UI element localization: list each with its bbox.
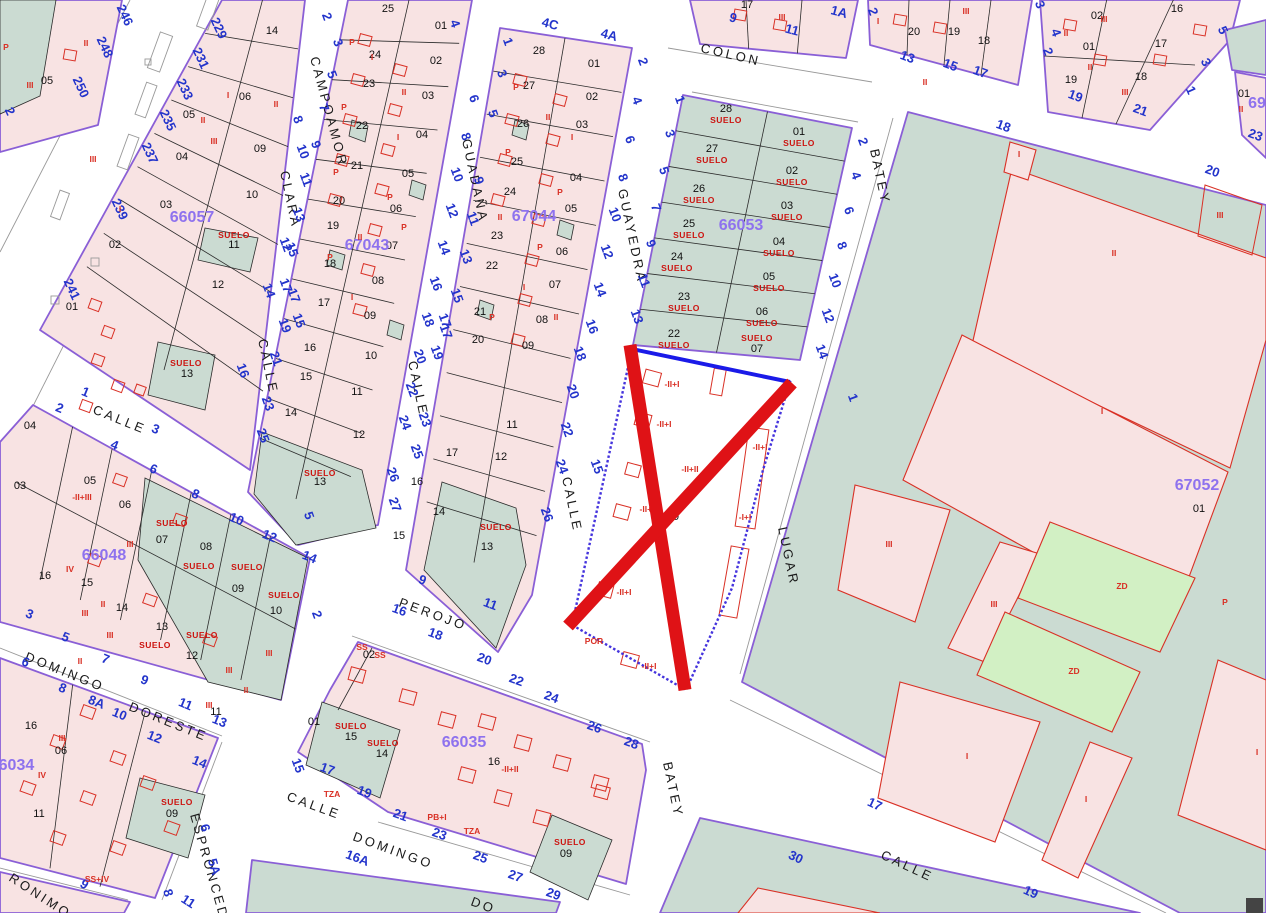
parcel-number: 01 xyxy=(588,58,600,70)
corner-marker xyxy=(1246,898,1263,913)
building-annotation: TZA xyxy=(324,789,341,799)
building-annotation: P xyxy=(557,187,563,197)
suelo-label: SUELO xyxy=(776,177,808,187)
parcel-number: 02 xyxy=(786,165,798,177)
building-annotation: II xyxy=(78,656,83,666)
parcel-number: 23 xyxy=(363,78,375,90)
parcel-number: 03 xyxy=(422,90,434,102)
building-annotation: -II+I xyxy=(617,587,632,597)
parcel-number: 16 xyxy=(304,342,316,354)
parcel-number: 01 xyxy=(793,126,805,138)
parcel-number: 11 xyxy=(351,386,362,398)
parcel-number: 03 xyxy=(14,480,26,492)
parcel-number: 14 xyxy=(266,25,278,37)
parcel-number: 17 xyxy=(741,0,753,11)
block-id-69: 69 xyxy=(1248,95,1266,112)
building-annotation: III xyxy=(1216,210,1223,220)
building-annotation: I xyxy=(371,52,373,62)
parcel-number: 26 xyxy=(693,183,705,195)
building-annotation: III xyxy=(81,608,88,618)
parcel-number: 27 xyxy=(706,143,718,155)
suelo-label: SUELO xyxy=(696,155,728,165)
building-annotation: II xyxy=(358,232,363,242)
block-id-66048: 66048 xyxy=(82,547,127,564)
building-annotation: II xyxy=(1112,248,1117,258)
parcel-number: 14 xyxy=(433,506,445,518)
parcel-number: 07 xyxy=(751,343,763,355)
building-annotation: P xyxy=(327,252,333,262)
parcel-number: 05 xyxy=(763,271,775,283)
parcel-number: 15 xyxy=(81,577,93,589)
building-annotation: -II+I xyxy=(657,419,672,429)
parcel-number: 01 xyxy=(1193,503,1205,515)
building-annotation: PB+I xyxy=(427,812,446,822)
parcel-number: 25 xyxy=(382,3,394,15)
suelo-label: SUELO xyxy=(683,195,715,205)
parcel-number: 14 xyxy=(116,602,128,614)
parcel-number: 20 xyxy=(908,26,920,38)
building-annotation: III xyxy=(26,80,33,90)
parcel-number: 09 xyxy=(232,583,244,595)
parcel-number: 20 xyxy=(333,195,345,207)
building-annotation: SS xyxy=(374,650,386,660)
building-annotation: -II+II xyxy=(501,764,518,774)
block-id-66057: 66057 xyxy=(170,209,215,226)
parcel-number: 18 xyxy=(978,35,990,47)
parcel-number: 18 xyxy=(1135,71,1147,83)
building-annotation: II xyxy=(201,115,206,125)
building-annotation: P xyxy=(333,167,339,177)
suelo-label: SUELO xyxy=(741,333,773,343)
block-id-67052: 67052 xyxy=(1175,477,1220,494)
suelo-label: SUELO xyxy=(763,248,795,258)
building-annotation: P xyxy=(387,192,393,202)
parcel-number: 19 xyxy=(1065,74,1077,86)
parcel-number: 24 xyxy=(671,251,683,263)
suelo-label: SUELO xyxy=(658,340,690,350)
parcel-number: 06 xyxy=(556,246,568,258)
parcel-number: 09 xyxy=(166,808,178,820)
suelo-label: SUELO xyxy=(554,837,586,847)
parcel-number: 14 xyxy=(376,748,388,760)
parcel-number: 05 xyxy=(183,109,195,121)
parcel-number: 05 xyxy=(41,75,53,87)
building-annotation: P xyxy=(489,312,495,322)
suelo-label: SUELO xyxy=(231,562,263,572)
parcel-number: 10 xyxy=(365,350,377,362)
parcel-number: 17 xyxy=(446,447,458,459)
parcel-number: 23 xyxy=(491,230,503,242)
suelo-label: SUELO xyxy=(668,303,700,313)
building-annotation: III xyxy=(89,154,96,164)
building-annotation: II xyxy=(84,38,89,48)
building-annotation: ZD xyxy=(1116,581,1127,591)
building-annotation: III xyxy=(265,648,272,658)
parcel-number: 07 xyxy=(156,534,168,546)
building-annotation: III xyxy=(962,6,969,16)
parcel-number: 16 xyxy=(1171,3,1183,15)
building-annotation: I xyxy=(571,132,573,142)
building-annotation: III xyxy=(885,539,892,549)
building-annotation: I xyxy=(1256,747,1258,757)
parcel-number: 02 xyxy=(430,55,442,67)
suelo-label: SUELO xyxy=(771,212,803,222)
parcel-number: 22 xyxy=(486,260,498,272)
suelo-label: SUELO xyxy=(335,721,367,731)
parcel-number: 04 xyxy=(570,172,582,184)
building-annotation: II xyxy=(1064,28,1069,38)
parcel-number: 09 xyxy=(522,340,534,352)
parcel-number: 12 xyxy=(495,451,507,463)
suelo-label: SUELO xyxy=(161,797,193,807)
parcel-number: 12 xyxy=(212,279,224,291)
suelo-label: SUELO xyxy=(673,230,705,240)
parcel-number: 12 xyxy=(186,650,198,662)
suelo-label: SUELO xyxy=(710,115,742,125)
parcel-number: 25 xyxy=(511,156,523,168)
parcel-number: 05 xyxy=(84,475,96,487)
building-annotation: P xyxy=(537,242,543,252)
parcel-number: 21 xyxy=(474,306,486,318)
block-id-66034: 66034 xyxy=(0,757,34,774)
building-annotation: II xyxy=(274,99,279,109)
building-annotation: I xyxy=(227,90,229,100)
parcel-number: 11 xyxy=(506,419,517,431)
parcel-number: 13 xyxy=(156,621,168,633)
parcel-number: 28 xyxy=(533,45,545,57)
parcel-number: 15 xyxy=(300,371,312,383)
building-annotation: P xyxy=(513,82,519,92)
building-annotation: -II+I xyxy=(753,442,768,452)
parcel-number: 17 xyxy=(318,297,330,309)
building-annotation: II xyxy=(554,312,559,322)
building-annotation: III xyxy=(126,539,133,549)
parcel-number: 01 xyxy=(435,20,447,32)
parcel-number: 16 xyxy=(25,720,37,732)
building-annotation: III xyxy=(106,630,113,640)
suelo-label: SUELO xyxy=(183,561,215,571)
building-annotation: III xyxy=(778,12,785,22)
parcel-number: 23 xyxy=(678,291,690,303)
parcel-number: 17 xyxy=(1155,38,1167,50)
building-annotation: P xyxy=(1222,597,1228,607)
parcel-number: 15 xyxy=(345,731,357,743)
building-annotation: II xyxy=(402,87,407,97)
parcel-number: 09 xyxy=(560,848,572,860)
parcel-number: 25 xyxy=(683,218,695,230)
block-id-67043: 67043 xyxy=(345,237,390,254)
parcel-number: 06 xyxy=(239,91,251,103)
building-annotation: III xyxy=(210,136,217,146)
building-annotation: I xyxy=(1018,149,1020,159)
parcel-number: 10 xyxy=(270,605,282,617)
building-annotation: P xyxy=(505,147,511,157)
parcel-number: 10 xyxy=(246,189,258,201)
building-annotation: II xyxy=(1239,104,1244,114)
building-annotation: -II+I xyxy=(642,661,657,671)
parcel-number: 12 xyxy=(353,429,365,441)
parcel-number: 16 xyxy=(411,476,423,488)
parcel-number: 27 xyxy=(523,80,535,92)
cadastral-map[interactable]: COLONCAMPOAMORCLARACALLEGUADAÑACALLEGUAY… xyxy=(0,0,1266,913)
suelo-label: SUELO xyxy=(367,738,399,748)
suelo-label: SUELO xyxy=(268,590,300,600)
parcel-number: 16 xyxy=(39,570,51,582)
building-annotation: III xyxy=(1121,87,1128,97)
block-id-66053: 66053 xyxy=(719,217,764,234)
building-annotation: IV xyxy=(38,770,46,780)
suelo-label: SUELO xyxy=(480,522,512,532)
parcel-number: 04 xyxy=(773,236,785,248)
parcel-number: 26 xyxy=(517,118,529,130)
parcel-number: 06 xyxy=(756,306,768,318)
parcel-number: 04 xyxy=(24,420,36,432)
building-annotation: III xyxy=(1100,14,1107,24)
parcel-number: 22 xyxy=(356,120,368,132)
parcel-number: 24 xyxy=(504,186,516,198)
parcel-number: 13 xyxy=(481,541,493,553)
building-annotation: SS+IV xyxy=(85,874,110,884)
building-annotation: P xyxy=(401,222,407,232)
parcel-number: 16 xyxy=(488,756,500,768)
building-annotation: -II+III xyxy=(72,492,92,502)
building-annotation: SS xyxy=(356,642,368,652)
parcel-number: 04 xyxy=(176,151,188,163)
parcel-number: 11 xyxy=(33,808,44,820)
parcel-number: 13 xyxy=(181,368,193,380)
suelo-label: SUELO xyxy=(661,263,693,273)
building-annotation: -I+I xyxy=(739,512,752,522)
building-annotation: I xyxy=(1101,406,1103,416)
suelo-label: SUELO xyxy=(783,138,815,148)
block-id-67044: 67044 xyxy=(512,208,557,225)
parcel-number: 11 xyxy=(228,239,239,251)
building-annotation: II xyxy=(498,212,503,222)
parcel-number: 15 xyxy=(393,530,405,542)
parcel-number: 05 xyxy=(565,203,577,215)
parcel-number: 01 xyxy=(1083,41,1095,53)
building-annotation: -II+II xyxy=(681,464,698,474)
parcel-number: 08 xyxy=(372,275,384,287)
parcel-number: 06 xyxy=(119,499,131,511)
parcel-number: 04 xyxy=(416,129,428,141)
building-annotation: II xyxy=(1088,62,1093,72)
parcel-number: 03 xyxy=(781,200,793,212)
building-annotation: TZA xyxy=(464,826,481,836)
parcel-number: 09 xyxy=(254,143,266,155)
building-annotation: II xyxy=(546,112,551,122)
parcel-number: 19 xyxy=(327,220,339,232)
parcel-number: 19 xyxy=(948,26,960,38)
suelo-label: SUELO xyxy=(156,518,188,528)
building-annotation: III xyxy=(990,599,997,609)
parcel-number: 03 xyxy=(576,119,588,131)
parcel-number: 06 xyxy=(390,203,402,215)
parcel-number: 14 xyxy=(285,407,297,419)
building-annotation: II xyxy=(923,77,928,87)
parcel-number: 01 xyxy=(308,716,320,728)
parcel-number: 02 xyxy=(586,91,598,103)
suelo-label: SUELO xyxy=(186,630,218,640)
building-annotation: -II+I xyxy=(665,379,680,389)
building-annotation: I xyxy=(397,132,399,142)
parcel-number: 06 xyxy=(55,745,67,757)
building-annotation: I xyxy=(877,16,879,26)
parcel-number: 08 xyxy=(200,541,212,553)
building-annotation: II xyxy=(101,599,106,609)
building-annotation: I xyxy=(523,282,525,292)
parcel-number: 09 xyxy=(364,310,376,322)
building-annotation: P xyxy=(341,102,347,112)
parcel-number: 21 xyxy=(351,160,363,172)
suelo-label: SUELO xyxy=(139,640,171,650)
suelo-label: SUELO xyxy=(304,468,336,478)
parcel-number: 22 xyxy=(668,328,680,340)
building-annotation: I xyxy=(1085,794,1087,804)
cadastral-map-viewport[interactable]: COLONCAMPOAMORCLARACALLEGUADAÑACALLEGUAY… xyxy=(0,0,1266,913)
building-annotation: ZD xyxy=(1068,666,1079,676)
block-id-66035: 66035 xyxy=(442,734,487,751)
building-annotation: III xyxy=(58,733,65,743)
building-annotation: IV xyxy=(66,564,74,574)
suelo-label: SUELO xyxy=(218,230,250,240)
parcel-number: 28 xyxy=(720,103,732,115)
suelo-label: SUELO xyxy=(753,283,785,293)
building-annotation: P xyxy=(349,37,355,47)
building-annotation: III xyxy=(205,700,212,710)
suelo-label: SUELO xyxy=(170,358,202,368)
parcel-number: 02 xyxy=(109,239,121,251)
building-annotation: I xyxy=(119,204,121,214)
building-annotation: I xyxy=(966,751,968,761)
building-annotation: I xyxy=(351,292,353,302)
parcel-number: 20 xyxy=(472,334,484,346)
parcel-number: 05 xyxy=(402,168,414,180)
building-annotation: II xyxy=(244,685,249,695)
parcel-number: 07 xyxy=(549,279,561,291)
suelo-label: SUELO xyxy=(746,318,778,328)
building-annotation: III xyxy=(225,665,232,675)
building-annotation: P xyxy=(3,42,9,52)
building-annotation: POR xyxy=(585,636,603,646)
parcel-number: 08 xyxy=(536,314,548,326)
parcel-number: 01 xyxy=(66,301,78,313)
